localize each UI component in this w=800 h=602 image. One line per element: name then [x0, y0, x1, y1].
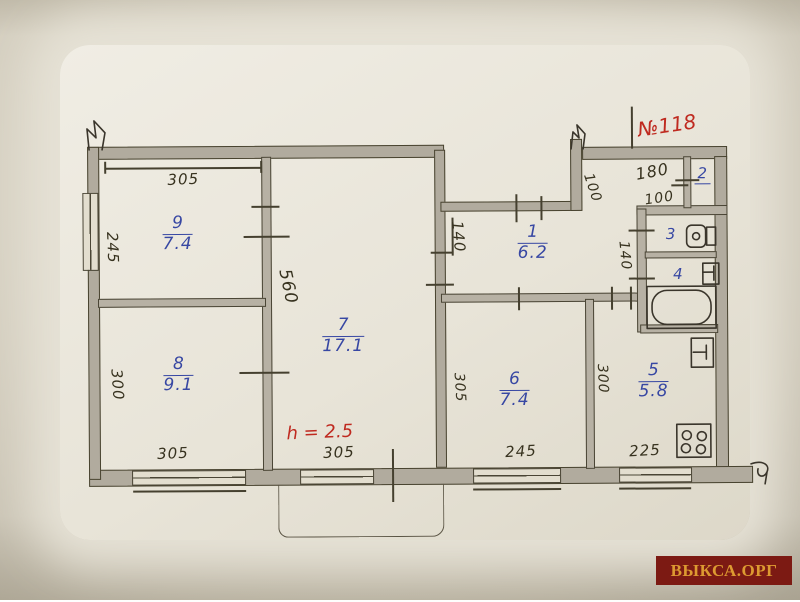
dim-room6-depth: 305 — [451, 372, 469, 403]
room-number: 3 — [663, 227, 679, 244]
room-label-7: 7 17.1 — [322, 317, 364, 356]
dim-room7-width: 305 — [323, 443, 355, 462]
room-label-8: 8 9.1 — [163, 356, 193, 395]
dim-wc-depth: 140 — [615, 240, 634, 271]
room-number: 5 — [638, 362, 668, 382]
dim-kitchen-width: 225 — [629, 441, 662, 461]
photo-background: 305 245 300 305 560 305 140 100 180 100 … — [0, 0, 800, 600]
room-label-9: 9 7.4 — [162, 215, 192, 254]
room-number: 9 — [162, 215, 192, 235]
stove-icon — [677, 424, 711, 457]
room-label-2: 2 — [694, 166, 710, 184]
watermark-text: ВЫКСА.ОРГ — [671, 561, 778, 581]
room-label-3: 3 — [663, 227, 679, 244]
kitchen-sink-icon — [691, 338, 713, 367]
room-label-4: 4 — [670, 267, 686, 284]
dim-room9-depth: 245 — [103, 232, 122, 264]
dim-hall-left: 140 — [448, 220, 469, 253]
room-area: 6.2 — [518, 244, 548, 263]
room-number: 4 — [670, 267, 686, 284]
dim-room9-width: 305 — [167, 170, 199, 189]
room-area: 7.4 — [500, 391, 530, 410]
room-area: 17.1 — [322, 337, 364, 356]
dim-room6-width: 245 — [505, 441, 538, 461]
wall-break-icon — [87, 121, 105, 150]
room-label-6: 6 7.4 — [499, 371, 529, 410]
dim-room8-width: 305 — [157, 444, 189, 463]
room-label-5: 5 5.8 — [638, 362, 668, 401]
wall-break-icon — [751, 462, 768, 484]
room-label-1: 1 6.2 — [518, 224, 548, 263]
dim-room8-depth: 300 — [107, 368, 127, 401]
room-area: 9.1 — [163, 376, 193, 395]
room-number: 6 — [499, 371, 529, 391]
fixtures-overlay — [0, 0, 800, 602]
ceiling-height-note: h = 2.5 — [286, 421, 353, 445]
room-area: 5.8 — [638, 382, 668, 401]
bathtub-icon — [647, 286, 716, 328]
dim-kitchen-depth: 300 — [594, 364, 611, 394]
floor-plan: 305 245 300 305 560 305 140 100 180 100 … — [0, 0, 800, 602]
room-number: 1 — [518, 224, 548, 244]
room-number: 8 — [163, 356, 193, 376]
room-number: 2 — [694, 166, 710, 184]
room-number: 7 — [322, 317, 364, 337]
sink-icon — [703, 263, 719, 284]
watermark-badge: ВЫКСА.ОРГ — [656, 556, 792, 585]
toilet-icon — [687, 225, 716, 247]
room-area: 7.4 — [163, 235, 193, 254]
wall-break-icon — [571, 125, 585, 149]
